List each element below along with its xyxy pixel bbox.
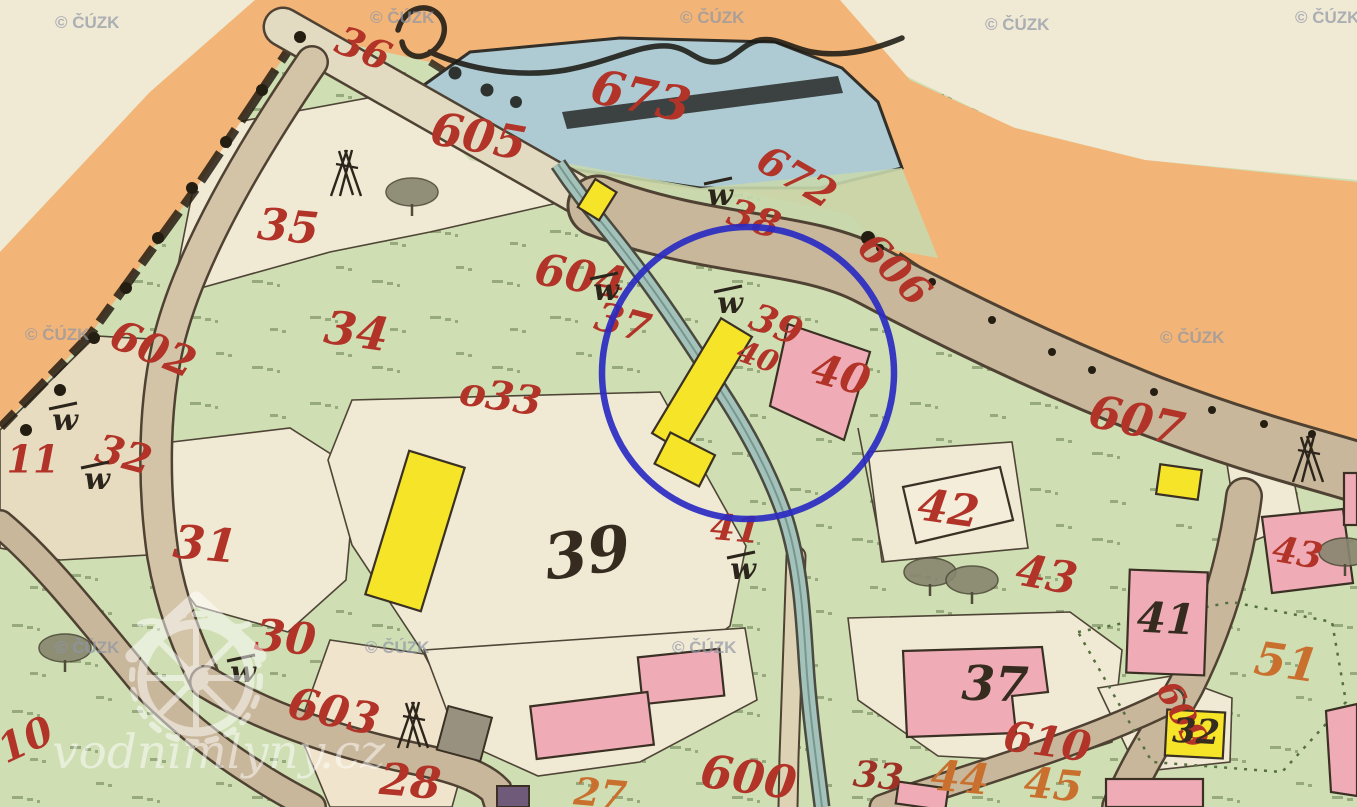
svg-text:w: w xyxy=(52,403,79,438)
parcel-number-label: 31 xyxy=(171,514,239,573)
parcel-number-label: 28 xyxy=(377,754,443,807)
cuzk-watermark: © ČÚZK xyxy=(370,8,435,27)
parcel-number-label: 45 xyxy=(1022,758,1085,807)
w-meadow-symbol: w xyxy=(714,286,744,321)
w-meadow-symbol: w xyxy=(81,462,111,497)
building-road-607 xyxy=(1156,464,1202,500)
w-meadow-symbol: w xyxy=(727,552,757,587)
cuzk-watermark: © ČÚZK xyxy=(55,13,120,32)
svg-text:w: w xyxy=(717,286,744,321)
svg-text:w: w xyxy=(707,178,734,213)
parcel-number-label: 43 xyxy=(1269,528,1326,578)
building-farm-a xyxy=(638,649,724,704)
w-meadow-symbol: w xyxy=(590,273,620,308)
cuzk-watermark: © ČÚZK xyxy=(1160,328,1225,347)
parcel-number-label: 27 xyxy=(571,768,629,807)
site-watermark-text: vodnimlyny.cz xyxy=(52,725,385,780)
parcel-number-label: 11 xyxy=(7,437,60,482)
parcel-number-label: 33 xyxy=(851,753,905,799)
cuzk-watermark: © ČÚZK xyxy=(672,638,737,657)
parcel-number-label: 51 xyxy=(1251,631,1322,693)
svg-text:w: w xyxy=(593,273,620,308)
parcel-number-label: 35 xyxy=(256,199,321,255)
parcel-number-label: 39 xyxy=(539,510,635,594)
cadastral-map: 36605673672606386043739404035602343211o3… xyxy=(0,0,1357,807)
building-edge-a xyxy=(1344,473,1357,525)
map-viewport[interactable]: 36605673672606386043739404035602343211o3… xyxy=(0,0,1357,807)
cuzk-watermark: © ČÚZK xyxy=(365,638,430,657)
parcel-number-label: 37 xyxy=(961,655,1030,713)
cuzk-watermark: © ČÚZK xyxy=(25,325,90,344)
logo-spokes xyxy=(142,624,250,732)
cuzk-watermark: © ČÚZK xyxy=(1295,8,1357,27)
svg-text:w: w xyxy=(730,552,757,587)
parcel-number-label: 44 xyxy=(929,751,992,805)
building-bottom-a xyxy=(1106,779,1203,807)
building-small-purple xyxy=(497,786,529,807)
parcel-number-label: 41 xyxy=(1136,593,1197,645)
svg-text:w: w xyxy=(84,462,111,497)
w-meadow-symbol: w xyxy=(704,178,734,213)
cuzk-watermark: © ČÚZK xyxy=(55,638,120,657)
parcel-number-label: 42 xyxy=(915,480,983,539)
parcel-number-label: 34 xyxy=(321,300,392,362)
parcel-number-label: 43 xyxy=(1012,545,1081,606)
w-meadow-symbol: w xyxy=(49,403,79,438)
cuzk-watermark: © ČÚZK xyxy=(680,8,745,27)
cuzk-watermark: © ČÚZK xyxy=(985,15,1050,34)
parcel-number-label: 32 xyxy=(1171,711,1220,753)
building-edge-b xyxy=(1326,704,1357,796)
